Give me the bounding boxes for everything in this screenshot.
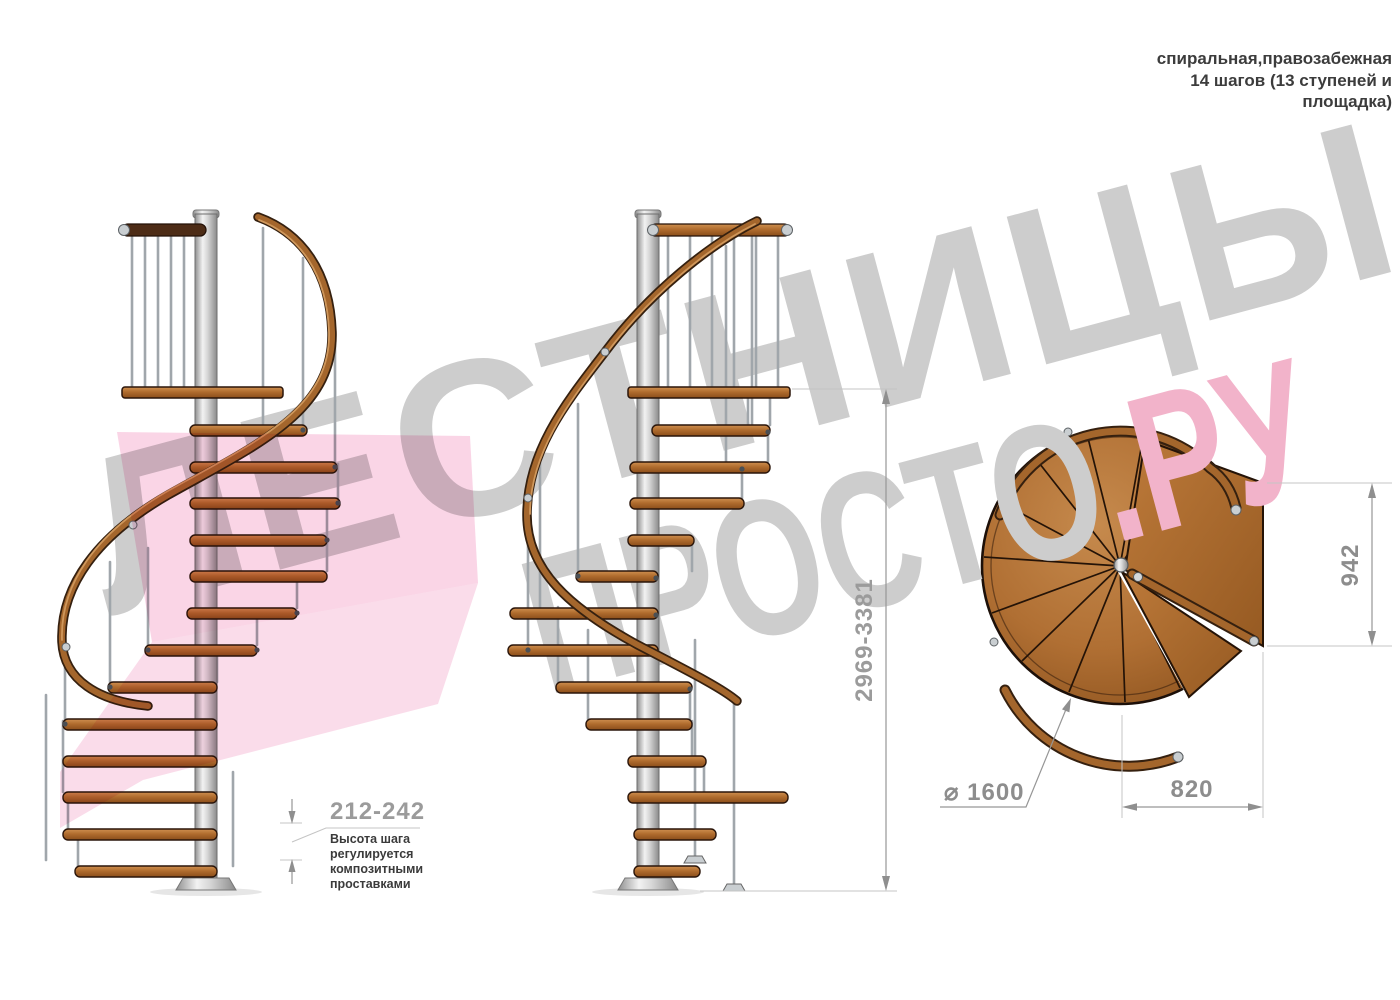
step-height-label: 212-242	[330, 798, 425, 825]
note-line-2: регулируется	[330, 847, 423, 862]
diameter-label: ⌀ 1600	[944, 779, 1025, 806]
platform-depth-label: 942	[1337, 543, 1364, 586]
drawing-title: спиральная,правозабежная 14 шагов (13 ст…	[1157, 48, 1392, 113]
drawing-canvas: ЛЕСТНИЦЫ ПРОСТО.РУ	[0, 0, 1400, 1000]
dimension-layer: 212-242 2969-3381 942 820	[0, 0, 1400, 1000]
step-height-note: Высота шага регулируется композитными пр…	[330, 832, 423, 892]
dim-total-height: 2969-3381	[700, 389, 897, 891]
total-height-label: 2969-3381	[851, 578, 878, 702]
note-line-1: Высота шага	[330, 832, 423, 847]
note-line-4: проставками	[330, 877, 423, 892]
dim-landing-width: 820	[1122, 652, 1263, 818]
landing-width-label: 820	[1170, 776, 1213, 803]
title-line-3: площадка)	[1157, 91, 1392, 113]
title-line-1: спиральная,правозабежная	[1157, 48, 1392, 70]
dim-diameter: ⌀ 1600	[940, 698, 1071, 807]
dim-platform-depth: 942	[1267, 483, 1392, 646]
note-line-3: композитными	[330, 862, 423, 877]
title-line-2: 14 шагов (13 ступеней и	[1157, 70, 1392, 92]
